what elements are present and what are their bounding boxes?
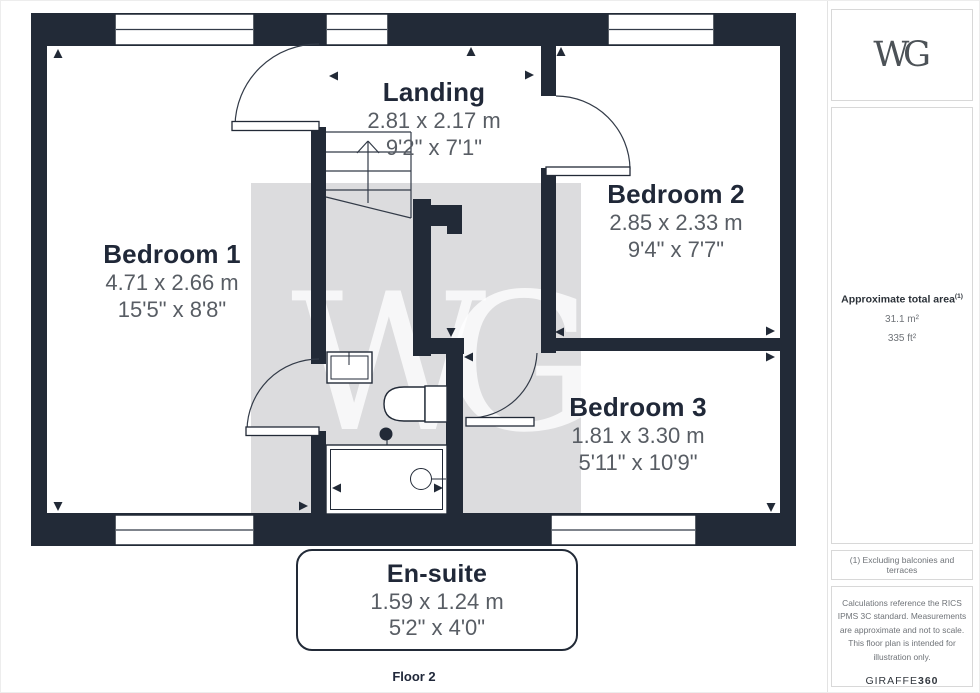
door-landing (232, 44, 319, 131)
door-bedroom-2 (546, 96, 630, 176)
room-size-imperial: 9'2" x 7'1" (367, 134, 500, 161)
room-label-bedroom-3: Bedroom 3 1.81 x 3.30 m 5'11" x 10'9" (569, 392, 707, 476)
info-sidebar: WG Approximate total area(1) 31.1 m² 335… (827, 1, 980, 693)
disclaimer-text: Calculations reference the RICS IPMS 3C … (837, 597, 967, 664)
toilet-icon (384, 386, 447, 422)
total-area-title: Approximate total area(1) (841, 293, 963, 306)
room-name: Bedroom 2 (607, 179, 745, 209)
room-size-imperial: 9'4" x 7'7" (607, 236, 745, 263)
window (115, 515, 254, 545)
room-size-metric: 2.81 x 2.17 m (367, 107, 500, 134)
room-label-landing: Landing 2.81 x 2.17 m 9'2" x 7'1" (367, 77, 500, 161)
total-area-imperial: 335 ft² (888, 333, 916, 344)
room-label-ensuite-callout: En-suite 1.59 x 1.24 m 5'2" x 4'0" (296, 549, 578, 651)
total-area-metric: 31.1 m² (885, 314, 919, 325)
room-label-bedroom-1: Bedroom 1 4.71 x 2.66 m 15'5" x 8'8" (103, 239, 241, 323)
giraffe360-logo: GIRAFFE360 (837, 673, 967, 690)
giraffe360-logo-suffix: 360 (918, 675, 939, 687)
floorplan-page: WG (0, 0, 980, 693)
room-size-metric: 1.59 x 1.24 m (370, 589, 503, 615)
window (551, 515, 696, 545)
room-size-metric: 4.71 x 2.66 m (103, 269, 241, 296)
giraffe360-logo-name: GIRAFFE (865, 675, 918, 687)
door-stop-dot (380, 428, 393, 441)
room-name: Landing (367, 77, 500, 107)
room-name: Bedroom 1 (103, 239, 241, 269)
sink-icon (327, 352, 372, 383)
footnote-exclusions: (1) Excluding balconies and terraces (831, 550, 973, 580)
window (326, 14, 388, 45)
window (115, 14, 254, 45)
room-size-imperial: 15'5" x 8'8" (103, 296, 241, 323)
total-area-panel: Approximate total area(1) 31.1 m² 335 ft… (831, 107, 973, 544)
room-size-imperial: 5'2" x 4'0" (389, 615, 485, 641)
room-size-metric: 2.85 x 2.33 m (607, 209, 745, 236)
shower-icon (326, 445, 447, 514)
room-size-imperial: 5'11" x 10'9" (569, 449, 707, 476)
disclaimer-panel: Calculations reference the RICS IPMS 3C … (831, 586, 973, 687)
agency-logo: WG (831, 9, 973, 101)
room-size-metric: 1.81 x 3.30 m (569, 422, 707, 449)
total-area-title-text: Approximate total area (841, 294, 955, 306)
total-area-footnote-ref: (1) (955, 293, 963, 300)
floor-plan: WG (1, 1, 827, 693)
room-name: Bedroom 3 (569, 392, 707, 422)
room-label-bedroom-2: Bedroom 2 2.85 x 2.33 m 9'4" x 7'7" (607, 179, 745, 263)
room-name: En-suite (387, 559, 487, 589)
floor-label: Floor 2 (392, 669, 435, 684)
window (608, 14, 714, 45)
